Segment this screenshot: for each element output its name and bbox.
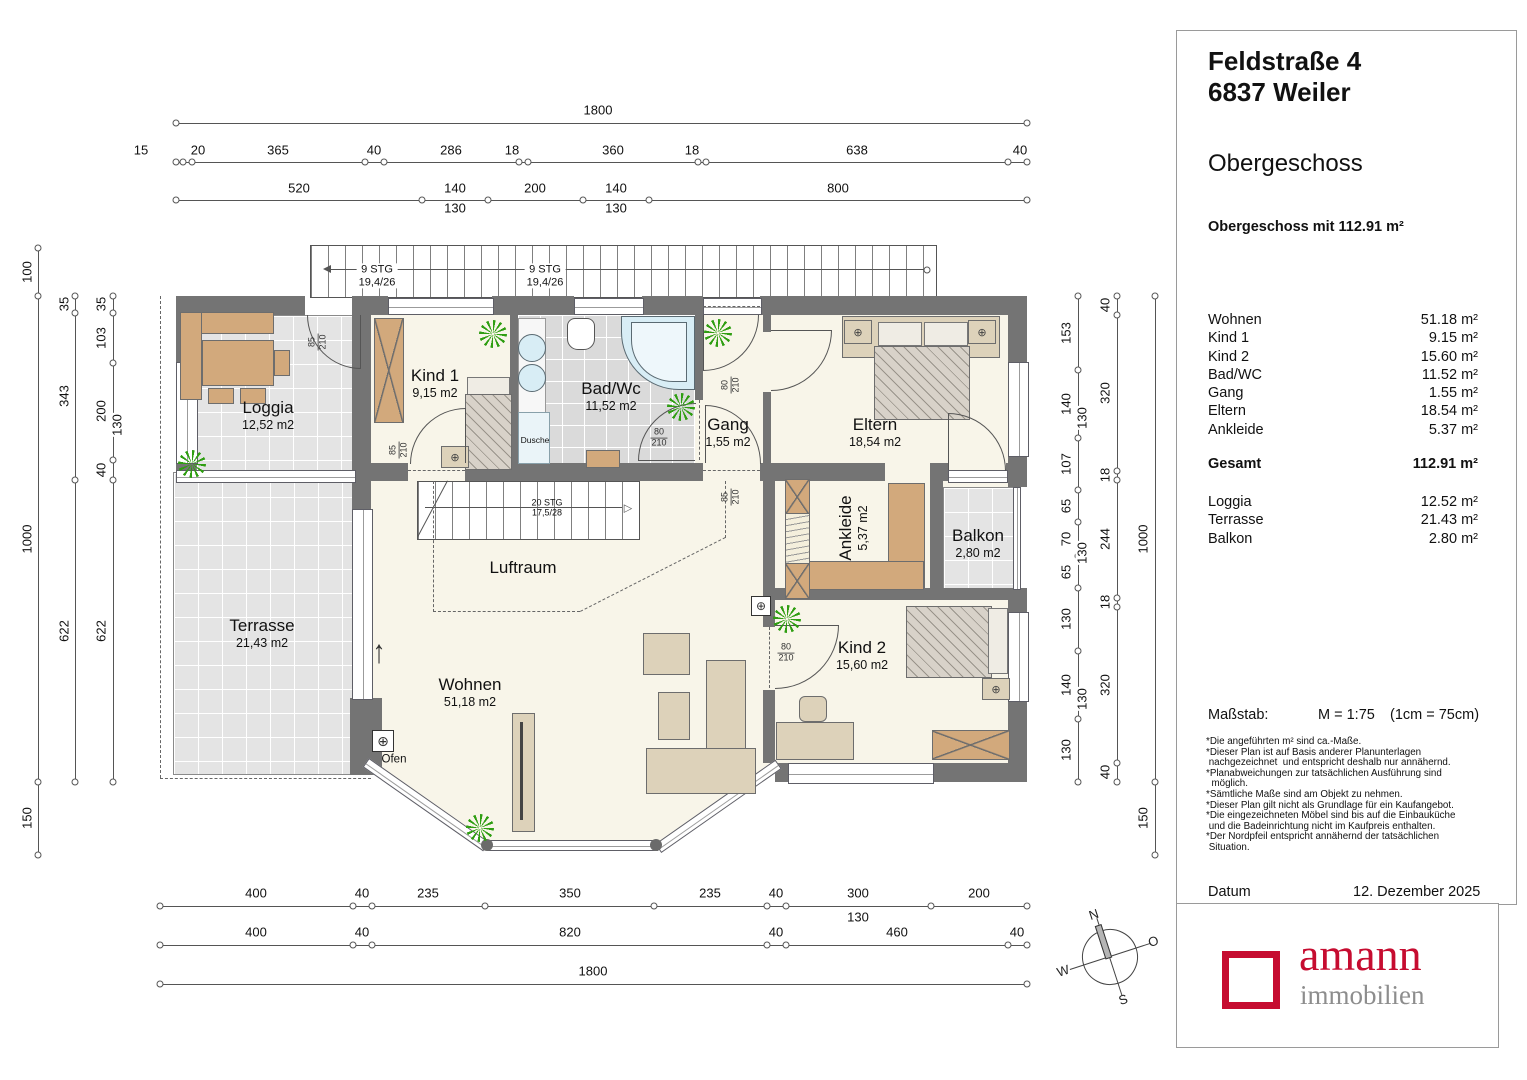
dimension-label: 150 [1137, 806, 1150, 830]
plant-icon [479, 320, 507, 348]
dimension-label: 244 [1099, 527, 1112, 551]
dimension-line [160, 984, 1027, 985]
dimension-label: 130 [604, 202, 628, 215]
room-area-value: 18.54 m² [1421, 403, 1478, 421]
sink [518, 334, 546, 362]
closet [800, 561, 924, 590]
dimension-tick [173, 159, 180, 166]
dimension-label: 100 [21, 260, 34, 284]
dimension-label: 103 [95, 326, 108, 350]
door-size-label: 80210 [721, 376, 742, 393]
dimension-tick [110, 360, 117, 367]
dimension-label: 40 [366, 144, 382, 157]
wardrobe [374, 318, 404, 423]
luftraum-outline [433, 611, 580, 612]
room-area-row: Eltern 18.54 m² [1208, 403, 1478, 421]
dimension-tick [764, 942, 771, 949]
footnote-line: *Planabweichungen zur tatsächlichen Ausf… [1206, 769, 1506, 780]
room-area-row: Ankleide 5.37 m² [1208, 422, 1478, 440]
sofa [706, 660, 746, 752]
logo-box: amann immobilien [1176, 903, 1499, 1048]
room-area-value: 9.15 m² [1429, 330, 1478, 348]
room-area-label: Bad/WC [1208, 367, 1262, 385]
door-size-label: 85210 [308, 333, 329, 350]
dimension-label: 18 [684, 144, 700, 157]
dimension-label: 65 [1060, 498, 1073, 514]
dimension-label: 65 [1060, 564, 1073, 580]
dimension-tick [35, 779, 42, 786]
dimension-label: 622 [95, 619, 108, 643]
dimension-line [1155, 296, 1156, 855]
stair-arrow-icon: ▷ [624, 502, 632, 515]
luftraum-outline [433, 481, 434, 612]
wardrobe [932, 730, 1010, 760]
dimension-label: 140 [604, 182, 628, 195]
door-threshold [769, 627, 770, 688]
room-area-row: Wohnen 51.18 m² [1208, 312, 1478, 330]
desk [776, 722, 854, 760]
stair-label: 9 STG19,4/26 [357, 263, 398, 288]
dimension-tick [1024, 159, 1031, 166]
dimension-label: 400 [244, 926, 268, 939]
dimension-label: 400 [244, 887, 268, 900]
dimension-label: 20 [190, 144, 206, 157]
dimension-label: 1000 [21, 524, 34, 555]
room-area-value: 1.55 m² [1429, 385, 1478, 403]
outdoor-area-table: Loggia 12.52 m² Terrasse 21.43 m² Balkon… [1208, 494, 1478, 549]
room-area-label: Ankleide [1208, 422, 1264, 440]
dimension-label: 130 [1076, 687, 1089, 711]
door-threshold [408, 470, 465, 471]
room-label: Wohnen51,18 m2 [438, 675, 501, 709]
logo-subtitle: immobilien [1300, 982, 1425, 1009]
outdoor-area-row: Loggia 12.52 m² [1208, 494, 1478, 512]
stair-walkline [330, 269, 927, 270]
dimension-line [1117, 296, 1118, 782]
dimension-label: 40 [354, 926, 370, 939]
window [1008, 362, 1029, 457]
wall [932, 763, 1027, 782]
dimension-label: 130 [1060, 738, 1073, 762]
room-label: Ofen [382, 753, 407, 766]
dimension-label: 18 [504, 144, 520, 157]
dimension-label: 360 [601, 144, 625, 157]
bed [874, 346, 970, 420]
dimension-label: 153 [1060, 321, 1073, 345]
dimension-tick [157, 981, 164, 988]
dimension-label: 1800 [583, 104, 614, 117]
dimension-tick [1152, 293, 1159, 300]
dimension-tick [110, 477, 117, 484]
dimension-tick [1114, 293, 1121, 300]
dimension-tick [1024, 942, 1031, 949]
dimension-tick [1152, 779, 1159, 786]
room-area-row: Kind 2 15.60 m² [1208, 349, 1478, 367]
plant-icon [773, 605, 801, 633]
wall [352, 463, 408, 481]
floor-title: Obergeschoss [1208, 150, 1363, 178]
dimension-tick [1075, 585, 1082, 592]
outdoor-area-label: Loggia [1208, 494, 1252, 512]
dimension-tick [1152, 852, 1159, 859]
dimension-label: 40 [1099, 297, 1112, 313]
room-area-value: 5.37 m² [1429, 422, 1478, 440]
room-area-label: Kind 1 [1208, 330, 1249, 348]
dimension-tick [646, 197, 653, 204]
dimension-label: 235 [416, 887, 440, 900]
stair-label: 9 STG19,4/26 [525, 263, 566, 288]
room-area-value: 15.60 m² [1421, 349, 1478, 367]
dimension-label: 35 [95, 296, 108, 312]
dimension-label: 40 [354, 887, 370, 900]
dimension-tick [1114, 477, 1121, 484]
dimension-label: 40 [95, 462, 108, 478]
room-label: Bad/Wc11,52 m2 [581, 379, 641, 413]
terrace-outline [160, 778, 371, 779]
direction-arrow-icon: ↑ [373, 633, 386, 672]
room-area-label: Wohnen [1208, 312, 1262, 330]
dimension-tick [1075, 367, 1082, 374]
plant-icon [178, 450, 206, 478]
window [388, 298, 494, 315]
room-label: Balkon2,80 m2 [952, 526, 1004, 560]
room-area-table: Wohnen 51.18 m² Kind 1 9.15 m² Kind 2 15… [1208, 312, 1478, 440]
dimension-tick [1075, 487, 1082, 494]
footnote-line: Situation. [1206, 843, 1506, 854]
address-line1: Feldstraße 4 [1208, 46, 1361, 77]
dimension-tick [1075, 779, 1082, 786]
dimension-tick [110, 293, 117, 300]
dimension-tick [1114, 312, 1121, 319]
wall [352, 481, 371, 509]
dimension-tick [1005, 159, 1012, 166]
dimension-tick [1075, 519, 1082, 526]
dimension-label: 200 [95, 399, 108, 423]
wall [492, 296, 574, 315]
dimension-label: 520 [287, 182, 311, 195]
pouf [658, 692, 690, 740]
dimension-label: 820 [558, 926, 582, 939]
dimension-label: 343 [58, 384, 71, 408]
room-area-label: Kind 2 [1208, 349, 1249, 367]
dimension-tick [35, 293, 42, 300]
terrace-outline [160, 296, 161, 778]
balcony-railing [1013, 487, 1021, 590]
dimension-line [176, 123, 1027, 124]
door-size-label: 80210 [777, 643, 794, 664]
outdoor-area-value: 2.80 m² [1429, 531, 1478, 549]
dimension-tick [1114, 468, 1121, 475]
wall [1008, 588, 1027, 612]
dimension-tick [1075, 716, 1082, 723]
outdoor-area-label: Balkon [1208, 531, 1252, 549]
door-leaf [465, 408, 466, 463]
room-label: Kind 19,15 m2 [411, 366, 459, 400]
dimension-label: 130 [111, 413, 124, 437]
scale-note: (1cm = 75cm) [1390, 707, 1479, 723]
dimension-line [160, 945, 1027, 946]
dimension-label: 1000 [1137, 524, 1150, 555]
dimension-label: 460 [885, 926, 909, 939]
room-area-row: Bad/WC 11.52 m² [1208, 367, 1478, 385]
door-threshold [703, 470, 760, 471]
dimension-tick [1005, 942, 1012, 949]
dimension-tick [173, 197, 180, 204]
wall [763, 392, 771, 463]
dimension-label: 107 [1060, 452, 1073, 476]
dimension-line [75, 296, 76, 782]
sideboard [512, 713, 535, 832]
door-leaf [638, 460, 695, 461]
closet [785, 563, 810, 599]
wall [763, 315, 771, 332]
dimension-label: 70 [1060, 531, 1073, 547]
room-label: Eltern18,54 m2 [849, 415, 901, 449]
wall [930, 481, 943, 588]
wall [930, 463, 948, 481]
dimension-label: 320 [1099, 673, 1112, 697]
dimension-tick [1075, 435, 1082, 442]
dimension-tick [1114, 779, 1121, 786]
dimension-label: 15 [133, 144, 149, 157]
dimension-label: 140 [1060, 673, 1073, 697]
dimension-label: 40 [768, 926, 784, 939]
window [574, 298, 644, 315]
dimension-label: 365 [266, 144, 290, 157]
nightstand: ⊕ [982, 678, 1010, 700]
room-area-label: Gang [1208, 385, 1243, 403]
bed-pillow [924, 322, 968, 346]
window [1008, 612, 1029, 702]
door-size-label: 85210 [389, 441, 410, 458]
shelf [785, 513, 810, 565]
dimension-label: 200 [967, 887, 991, 900]
room-area-label: Eltern [1208, 403, 1246, 421]
door-size-label: 85210 [721, 488, 742, 505]
dimension-label: 1800 [578, 965, 609, 978]
balcony-door-sill [948, 470, 1008, 483]
dimension-label: 150 [21, 806, 34, 830]
bed [906, 606, 992, 678]
dimension-label: 18 [1099, 594, 1112, 610]
wall [760, 296, 1027, 315]
bath-mat [586, 450, 620, 468]
loggia-chair [274, 350, 290, 376]
loggia-chair [208, 388, 234, 404]
stair-walkline [425, 507, 622, 508]
room-area-row: Kind 1 9.15 m² [1208, 330, 1478, 348]
date-value: 12. Dezember 2025 [1353, 884, 1480, 900]
exterior-stairs [310, 245, 937, 298]
door-size-label: 80210 [650, 428, 667, 449]
logo-square-icon [1222, 951, 1280, 1009]
dimension-label: 130 [443, 202, 467, 215]
dimension-label: 35 [58, 296, 71, 312]
dimension-line [176, 200, 1027, 201]
dimension-tick [72, 477, 79, 484]
floor-subtitle: Obergeschoss mit 112.91 m² [1208, 219, 1404, 235]
dimension-label: 130 [846, 911, 870, 924]
dimension-tick [110, 779, 117, 786]
loggia-bench [180, 312, 202, 400]
dimension-tick [485, 197, 492, 204]
dimension-tick [651, 903, 658, 910]
stair-arrow-icon [323, 265, 331, 273]
dimension-tick [381, 159, 388, 166]
outdoor-area-row: Balkon 2.80 m² [1208, 531, 1478, 549]
window [352, 509, 373, 700]
door-leaf [360, 315, 361, 368]
dimension-tick [1024, 197, 1031, 204]
dimension-tick [189, 159, 196, 166]
dimension-label: 622 [58, 619, 71, 643]
sink [518, 364, 546, 392]
loggia-table [202, 340, 274, 386]
dimension-tick [157, 903, 164, 910]
bed-pillow [878, 322, 922, 346]
room-label: Loggia12,52 m2 [242, 398, 294, 432]
total-label: Gesamt [1208, 456, 1261, 474]
dimension-line [38, 248, 39, 855]
dimension-label: 638 [845, 144, 869, 157]
dimension-tick [1024, 120, 1031, 127]
dimension-label: 350 [558, 887, 582, 900]
dimension-label: 130 [1060, 607, 1073, 631]
scale-value: M = 1:75 [1318, 707, 1375, 723]
dimension-label: 40 [1012, 144, 1028, 157]
footnotes: *Die angeführten m² sind ca.-Maße.*Diese… [1206, 737, 1506, 854]
dimension-label: 286 [439, 144, 463, 157]
wall [1008, 455, 1027, 487]
window [788, 763, 934, 784]
dimension-tick [419, 197, 426, 204]
dimension-tick [1114, 760, 1121, 767]
door-threshold [699, 400, 700, 460]
dimension-tick [1024, 903, 1031, 910]
dimension-tick [1075, 648, 1082, 655]
dimension-tick [35, 852, 42, 859]
dimension-tick [482, 903, 489, 910]
dimension-label: 140 [443, 182, 467, 195]
dimension-label: 140 [1060, 392, 1073, 416]
plant-icon [704, 319, 732, 347]
dimension-line [160, 906, 1027, 907]
address-line2: 6837 Weiler [1208, 77, 1361, 108]
outdoor-area-row: Terrasse 21.43 m² [1208, 512, 1478, 530]
plant-icon [667, 393, 695, 421]
dimension-label: 235 [698, 887, 722, 900]
bay-window [487, 840, 658, 851]
bed-pillow [988, 608, 1008, 674]
chair [799, 696, 827, 722]
wall [642, 296, 703, 315]
dimension-tick [110, 310, 117, 317]
nightstand: ⊕ [844, 320, 872, 344]
dimension-tick [580, 197, 587, 204]
dimension-line [176, 162, 1027, 163]
dimension-label: 200 [523, 182, 547, 195]
wall [760, 463, 885, 481]
dimension-tick [516, 159, 523, 166]
outdoor-area-value: 12.52 m² [1421, 494, 1478, 512]
room-area-value: 51.18 m² [1421, 312, 1478, 330]
room-label: Terrasse21,43 m2 [229, 616, 294, 650]
dimension-tick [1075, 293, 1082, 300]
stair-walkline-end [924, 267, 931, 274]
dimension-label: 800 [826, 182, 850, 195]
room-label: Gang1,55 m2 [705, 415, 750, 449]
dimension-line [113, 296, 114, 782]
dimension-label: 130 [1076, 541, 1089, 565]
room-area-row: Gang 1.55 m² [1208, 385, 1478, 403]
dimension-label: 130 [1076, 406, 1089, 430]
dimension-label: 40 [768, 887, 784, 900]
outdoor-area-value: 21.43 m² [1421, 512, 1478, 530]
dimension-tick [369, 903, 376, 910]
wall [1008, 296, 1027, 362]
bay-post [650, 839, 662, 851]
dimension-tick [928, 903, 935, 910]
dimension-tick [110, 457, 117, 464]
dimension-tick [350, 942, 357, 949]
dimension-tick [525, 159, 532, 166]
dimension-tick [180, 159, 187, 166]
dimension-tick [783, 942, 790, 949]
dimension-tick [1024, 981, 1031, 988]
dimension-label: 40 [1099, 764, 1112, 780]
dimension-label: 320 [1099, 381, 1112, 405]
room-label: Ankleide5,37 m2 [836, 495, 870, 560]
plant-icon [466, 814, 494, 842]
wall [695, 315, 703, 400]
logo-name: amann [1299, 932, 1422, 978]
dimension-tick [35, 245, 42, 252]
total-row: Gesamt 112.91 m² [1208, 456, 1478, 474]
armchair [643, 633, 690, 675]
dimension-tick [72, 779, 79, 786]
door-leaf [771, 330, 831, 331]
dimension-tick [369, 942, 376, 949]
total-value: 112.91 m² [1413, 456, 1478, 474]
dimension-tick [350, 903, 357, 910]
dimension-tick [783, 903, 790, 910]
stair-label: 20 STG17,5/28 [529, 498, 564, 519]
scale-label: Maßstab: [1208, 707, 1268, 723]
dimension-tick [1114, 604, 1121, 611]
dimension-tick [703, 159, 710, 166]
bed [465, 394, 512, 470]
door-leaf [703, 315, 704, 370]
door-threshold [703, 306, 760, 307]
room-label: Kind 215,60 m2 [836, 638, 888, 672]
nightstand: ⊕ [968, 320, 996, 344]
bed-pillow [467, 377, 510, 395]
dimension-tick [1114, 595, 1121, 602]
sofa [646, 748, 756, 794]
room-label: Luftraum [489, 558, 556, 578]
dimension-tick [72, 293, 79, 300]
dimension-label: 40 [1009, 926, 1025, 939]
vent-icon: ⊕ [751, 596, 771, 616]
closet [785, 479, 810, 515]
dimension-tick [362, 159, 369, 166]
door-leaf [948, 413, 949, 470]
dimension-tick [157, 942, 164, 949]
address: Feldstraße 4 6837 Weiler [1208, 46, 1361, 108]
date-label: Datum [1208, 884, 1251, 900]
room-label: Dusche [521, 436, 550, 446]
outdoor-area-label: Terrasse [1208, 512, 1264, 530]
